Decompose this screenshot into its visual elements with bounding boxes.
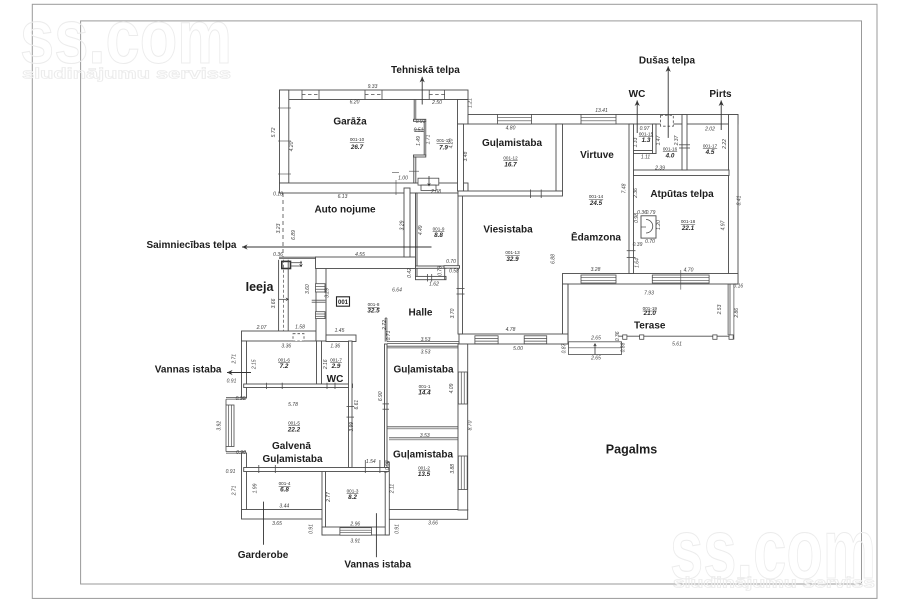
svg-text:1.49: 1.49 (416, 136, 422, 146)
svg-text:5.00: 5.00 (513, 346, 523, 352)
svg-text:001-15: 001-15 (639, 132, 654, 137)
svg-text:Guļamistaba: Guļamistaba (482, 138, 542, 149)
svg-text:0.39: 0.39 (633, 242, 643, 248)
svg-text:Viesistaba: Viesistaba (483, 225, 533, 236)
svg-text:1.64: 1.64 (635, 258, 641, 268)
svg-text:001-5: 001-5 (288, 421, 300, 426)
svg-text:2.36: 2.36 (633, 188, 639, 199)
svg-text:001-9: 001-9 (433, 226, 445, 231)
svg-text:WC: WC (327, 374, 344, 385)
svg-text:Halle: Halle (409, 308, 433, 319)
svg-text:Ēdamzona: Ēdamzona (571, 232, 621, 244)
svg-text:Ieeja: Ieeja (246, 280, 275, 294)
svg-text:6.13: 6.13 (338, 194, 348, 200)
svg-text:0.98: 0.98 (385, 460, 391, 470)
svg-text:32.5: 32.5 (367, 308, 380, 315)
svg-text:sludinājumu serviss: sludinājumu serviss (673, 575, 875, 592)
svg-text:2.07: 2.07 (256, 325, 267, 331)
svg-text:3.53: 3.53 (421, 337, 431, 343)
svg-text:2.72: 2.72 (382, 320, 388, 331)
svg-text:Garderobe: Garderobe (238, 550, 289, 561)
svg-text:22.2: 22.2 (287, 427, 301, 434)
svg-text:001-4: 001-4 (279, 481, 291, 486)
svg-text:4.78: 4.78 (506, 327, 516, 333)
svg-text:3.70: 3.70 (450, 308, 456, 318)
svg-text:1.58: 1.58 (295, 324, 305, 330)
svg-text:2.50: 2.50 (431, 100, 442, 106)
svg-text:0.88: 0.88 (620, 342, 626, 352)
svg-text:Dušas telpa: Dušas telpa (639, 56, 696, 67)
svg-text:001-3: 001-3 (347, 489, 359, 494)
svg-text:8.2: 8.2 (348, 494, 357, 501)
svg-text:4.97: 4.97 (721, 220, 727, 230)
svg-text:001-7: 001-7 (330, 358, 342, 363)
svg-text:0.36: 0.36 (273, 252, 283, 258)
svg-text:0.58: 0.58 (449, 268, 459, 274)
svg-text:2.96: 2.96 (349, 521, 360, 527)
svg-text:1.99: 1.99 (252, 483, 258, 493)
svg-text:001-2: 001-2 (418, 466, 430, 471)
svg-text:2.77: 2.77 (326, 492, 332, 503)
svg-text:6.8: 6.8 (280, 487, 289, 494)
svg-text:3.88: 3.88 (450, 464, 456, 474)
svg-text:4.09: 4.09 (449, 383, 455, 393)
svg-text:Guļamistaba: Guļamistaba (393, 365, 453, 376)
svg-text:0.91: 0.91 (227, 379, 237, 385)
svg-text:8.8: 8.8 (434, 232, 443, 239)
svg-text:3.92: 3.92 (216, 421, 222, 431)
svg-text:3.66: 3.66 (271, 298, 277, 308)
svg-text:3.44: 3.44 (279, 503, 289, 509)
svg-text:Tehniskā telpa: Tehniskā telpa (391, 65, 460, 76)
svg-text:Pirts: Pirts (709, 89, 732, 100)
svg-text:1.62: 1.62 (429, 282, 439, 288)
svg-text:0.98: 0.98 (634, 213, 640, 223)
svg-text:4.49: 4.49 (418, 225, 424, 235)
svg-text:2.22: 2.22 (722, 139, 728, 150)
svg-text:2.15: 2.15 (251, 359, 257, 370)
svg-text:13.41: 13.41 (595, 108, 608, 114)
svg-text:2.39: 2.39 (654, 165, 665, 171)
svg-text:Auto nojume: Auto nojume (314, 205, 376, 216)
svg-text:4.80: 4.80 (506, 125, 516, 131)
svg-text:1.47: 1.47 (656, 135, 662, 145)
svg-text:Pagalms: Pagalms (606, 443, 657, 457)
svg-text:2.86: 2.86 (734, 308, 740, 319)
svg-text:1.36: 1.36 (330, 343, 340, 349)
svg-text:16.7: 16.7 (504, 162, 517, 169)
svg-text:Virtuve: Virtuve (580, 150, 614, 161)
svg-text:5.78: 5.78 (288, 402, 298, 408)
svg-text:001-1: 001-1 (419, 384, 431, 389)
svg-text:21.0: 21.0 (643, 310, 657, 317)
svg-text:0.71: 0.71 (386, 330, 392, 340)
svg-text:8.41: 8.41 (737, 195, 743, 205)
svg-text:3.99: 3.99 (349, 422, 355, 432)
svg-text:6.88: 6.88 (551, 254, 557, 264)
svg-text:001-12: 001-12 (503, 156, 518, 161)
svg-text:4.5: 4.5 (705, 149, 715, 156)
svg-text:1.3: 1.3 (642, 137, 651, 144)
svg-text:6.61: 6.61 (354, 400, 360, 410)
svg-text:Guļamistaba: Guļamistaba (393, 450, 453, 461)
svg-text:6.90: 6.90 (378, 391, 384, 401)
svg-text:3.48: 3.48 (463, 151, 469, 161)
svg-text:2.16: 2.16 (323, 359, 329, 370)
svg-text:7.93: 7.93 (644, 290, 654, 296)
svg-text:2.53: 2.53 (717, 304, 723, 315)
svg-text:4.55: 4.55 (355, 252, 365, 258)
svg-text:0.18: 0.18 (273, 192, 283, 198)
svg-text:2.71: 2.71 (232, 485, 238, 496)
svg-text:6.20: 6.20 (350, 100, 360, 106)
svg-text:0.90: 0.90 (236, 450, 246, 456)
svg-text:24.5: 24.5 (589, 200, 603, 207)
svg-text:1.71: 1.71 (426, 134, 432, 144)
svg-text:13.5: 13.5 (418, 471, 431, 478)
svg-text:001-17: 001-17 (703, 144, 718, 149)
svg-text:3.23: 3.23 (276, 223, 282, 233)
svg-text:0.90: 0.90 (236, 396, 246, 402)
svg-text:1.20: 1.20 (656, 220, 662, 230)
svg-text:2.65: 2.65 (590, 336, 601, 342)
svg-text:2.65: 2.65 (590, 356, 601, 362)
svg-text:Atpūtas telpa: Atpūtas telpa (650, 189, 714, 200)
svg-text:1.21: 1.21 (468, 98, 474, 108)
svg-text:1.54: 1.54 (366, 459, 376, 465)
svg-text:001-6: 001-6 (278, 358, 290, 363)
svg-text:0.70: 0.70 (645, 239, 655, 245)
svg-text:Terase: Terase (634, 321, 666, 332)
svg-text:0.16: 0.16 (733, 283, 743, 289)
svg-text:0.36: 0.36 (615, 331, 621, 341)
svg-text:8.70: 8.70 (467, 420, 473, 430)
svg-text:Galvenā: Galvenā (272, 441, 311, 452)
svg-text:0.91: 0.91 (394, 524, 400, 534)
svg-text:sludinājumu serviss: sludinājumu serviss (22, 66, 231, 83)
svg-text:0.79: 0.79 (646, 210, 656, 216)
svg-text:3.29: 3.29 (400, 220, 406, 230)
svg-text:2.11: 2.11 (390, 484, 396, 495)
svg-text:001-16: 001-16 (663, 147, 678, 152)
svg-text:5.61: 5.61 (672, 342, 682, 348)
svg-text:001-13: 001-13 (505, 250, 520, 255)
svg-text:3.53: 3.53 (421, 350, 431, 356)
svg-text:4.70: 4.70 (684, 268, 694, 274)
svg-text:001-14: 001-14 (589, 194, 604, 199)
svg-text:3.60: 3.60 (305, 284, 311, 294)
svg-text:2.08: 2.08 (430, 189, 441, 195)
svg-text:1.45: 1.45 (335, 328, 345, 334)
svg-text:001: 001 (338, 300, 349, 306)
svg-text:3.53: 3.53 (420, 433, 430, 439)
svg-text:5.72: 5.72 (271, 127, 277, 137)
svg-text:0.42: 0.42 (407, 268, 413, 278)
svg-text:3.91: 3.91 (350, 538, 360, 544)
svg-text:001-18: 001-18 (681, 219, 696, 224)
svg-text:6.89: 6.89 (291, 230, 297, 240)
svg-text:1.00: 1.00 (398, 176, 408, 182)
svg-text:Saimniecības telpa: Saimniecības telpa (146, 240, 236, 251)
svg-text:26.7: 26.7 (350, 144, 364, 151)
svg-text:1.33: 1.33 (633, 137, 639, 147)
svg-text:3.65: 3.65 (272, 521, 282, 527)
svg-text:7.2: 7.2 (280, 363, 289, 370)
svg-text:2.9: 2.9 (331, 363, 341, 370)
svg-text:0.97: 0.97 (640, 126, 650, 132)
svg-text:14.4: 14.4 (418, 390, 431, 397)
svg-text:3.66: 3.66 (428, 521, 438, 527)
svg-text:Guļamistaba: Guļamistaba (262, 454, 322, 465)
svg-text:2.02: 2.02 (704, 127, 715, 133)
svg-text:0.51: 0.51 (414, 128, 424, 134)
svg-text:0.91: 0.91 (416, 119, 426, 125)
svg-text:9.33: 9.33 (368, 84, 378, 90)
svg-text:6.64: 6.64 (392, 288, 402, 294)
svg-text:32.9: 32.9 (506, 256, 519, 263)
svg-text:3.29: 3.29 (325, 288, 331, 298)
svg-text:001-10: 001-10 (350, 137, 365, 142)
svg-text:0.70: 0.70 (446, 259, 456, 265)
svg-text:0.91: 0.91 (309, 524, 315, 534)
svg-text:7.48: 7.48 (622, 183, 628, 193)
svg-text:4.20: 4.20 (449, 138, 455, 148)
svg-text:WC: WC (629, 89, 646, 100)
svg-text:0.91: 0.91 (226, 469, 236, 475)
svg-text:22.1: 22.1 (681, 225, 695, 232)
svg-text:001-8: 001-8 (368, 302, 380, 307)
svg-text:0.87: 0.87 (562, 343, 568, 353)
svg-text:7.9: 7.9 (439, 145, 448, 152)
svg-text:Vannas istaba: Vannas istaba (155, 365, 222, 376)
svg-text:2.37: 2.37 (674, 135, 680, 146)
svg-text:3.36: 3.36 (281, 343, 291, 349)
svg-text:Garāža: Garāža (333, 117, 367, 128)
svg-text:3.28: 3.28 (591, 267, 601, 273)
svg-text:Vannas istaba: Vannas istaba (344, 560, 411, 571)
svg-text:4.20: 4.20 (289, 141, 295, 151)
svg-text:2.71: 2.71 (232, 354, 238, 365)
svg-text:0.78: 0.78 (438, 266, 444, 276)
svg-text:4.0: 4.0 (665, 153, 675, 160)
svg-text:1.11: 1.11 (641, 154, 651, 160)
